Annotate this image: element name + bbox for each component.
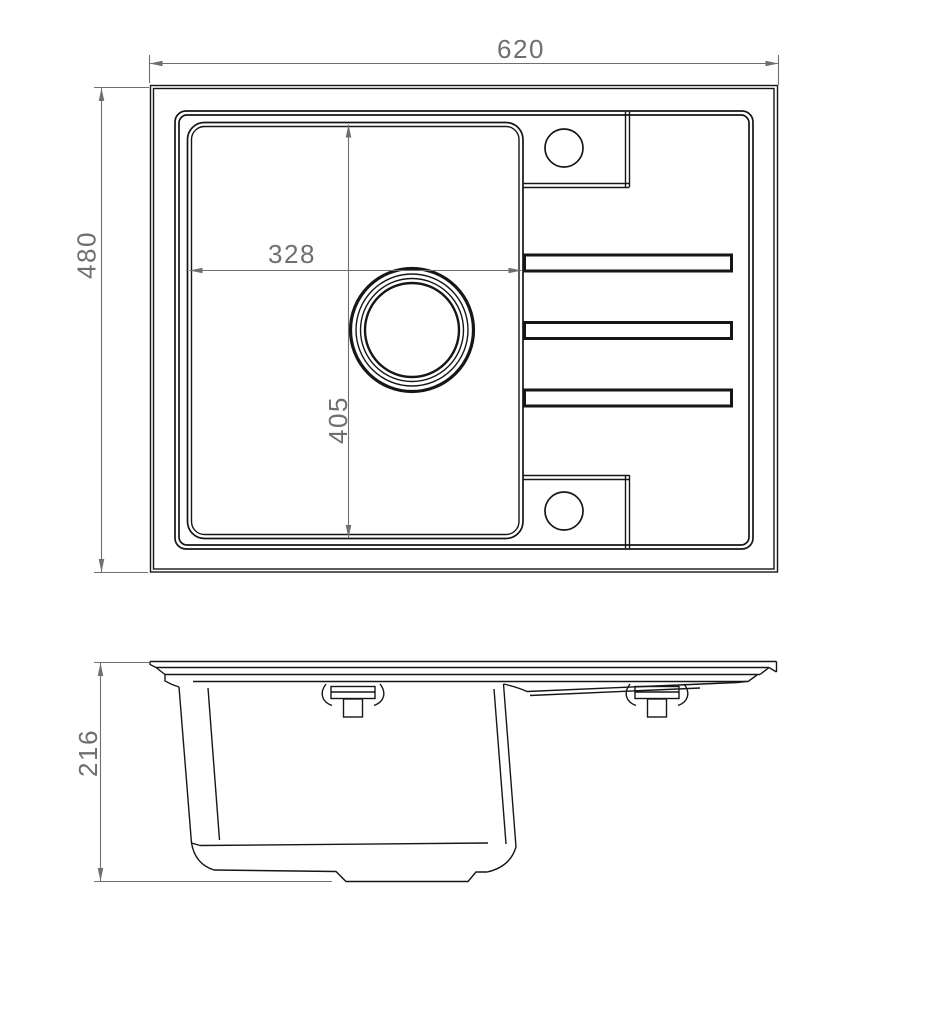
rim-lower-join (156, 668, 165, 675)
bowl-outline (179, 684, 516, 882)
tap-hole-top (545, 129, 583, 167)
clip-screw-tab (344, 699, 363, 717)
arrow-up-icon (99, 88, 105, 101)
drainer-groove (525, 255, 732, 271)
tap-hole-bottom (545, 492, 583, 530)
bowl-inner-wall-left (208, 688, 220, 840)
drain-ring-outer (351, 269, 474, 392)
bowl-edge-inner-line (192, 127, 520, 535)
rim-under-join (769, 668, 777, 673)
arrow-up-icon (98, 663, 104, 676)
drain-ring (361, 279, 464, 382)
bowl-profile (179, 682, 746, 882)
bowl-inner-wall-right (494, 689, 506, 844)
mounting-clip-right (626, 684, 688, 717)
mounting-clip-left (322, 684, 384, 717)
drawing-sheet: 620 480 328 405 (0, 0, 935, 1020)
arrow-left-icon (150, 61, 163, 67)
dimension-overall-height: 216 (73, 663, 332, 882)
tap-ledge-bottom (523, 475, 630, 548)
dimension-label-bowl-depth: 405 (323, 396, 353, 444)
dimension-overall-depth: 480 (72, 88, 150, 573)
bowl-inner-bottom (200, 843, 488, 846)
rim-left-lip (165, 675, 179, 688)
dimension-bowl-depth: 405 (323, 125, 353, 539)
drainer-underside-line (504, 682, 747, 692)
dimension-label-overall-depth: 480 (72, 231, 102, 279)
bowl-bottom-join (192, 843, 201, 846)
drainer-groove (525, 323, 732, 339)
drain-ring (356, 274, 468, 386)
dimension-overall-width: 620 (150, 34, 779, 85)
drainer-grooves (525, 255, 732, 406)
dimension-label-overall-width: 620 (497, 34, 545, 64)
arrow-right-icon (766, 61, 779, 67)
sink-side-view: 216 (73, 662, 777, 882)
dimension-bowl-width: 328 (190, 239, 522, 273)
drain-outlet (351, 269, 474, 392)
arrow-down-icon (346, 525, 352, 538)
rim-back-edge-join (748, 675, 757, 682)
rim-left-cap (150, 662, 156, 668)
dimension-label-overall-height: 216 (73, 729, 103, 777)
clip-screw-tab (648, 699, 667, 717)
drainer-groove (525, 390, 732, 406)
tap-ledge-top (523, 112, 630, 188)
arrow-down-icon (99, 559, 105, 572)
rim-lower-join (760, 668, 769, 675)
arrow-down-icon (98, 868, 104, 881)
countertop-rim-profile (150, 662, 777, 688)
technical-drawing-canvas: 620 480 328 405 (0, 0, 935, 1020)
sink-top-view: 620 480 328 405 (72, 34, 779, 573)
drain-ring-inner (365, 283, 459, 377)
dimension-label-bowl-width: 328 (268, 239, 316, 269)
